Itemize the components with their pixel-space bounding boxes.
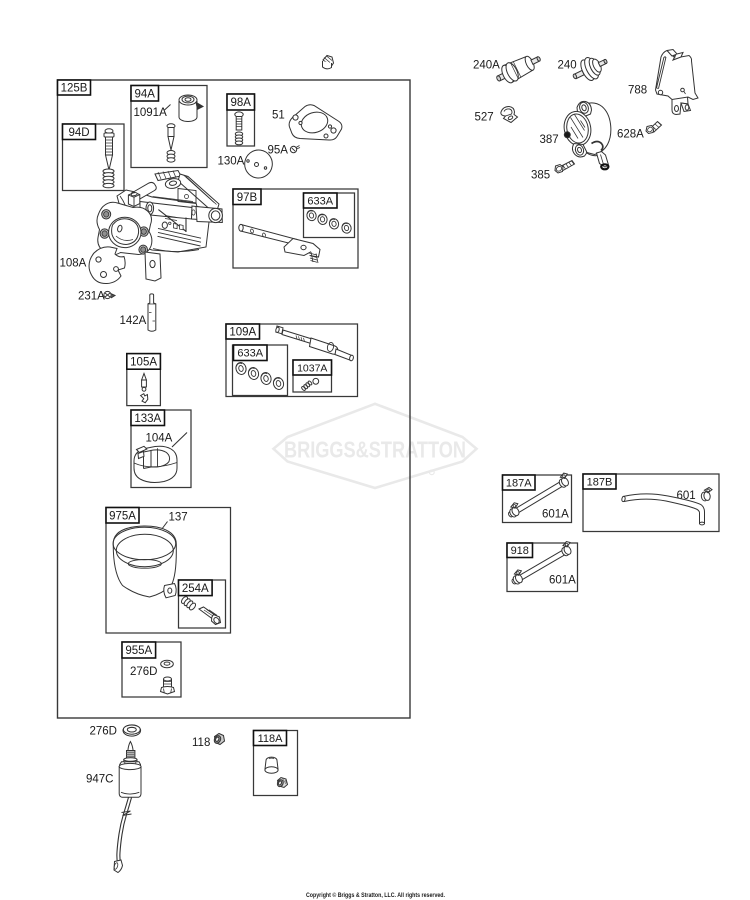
svg-text:788: 788 — [628, 85, 647, 97]
svg-text:240A: 240A — [473, 60, 500, 72]
svg-text:97B: 97B — [237, 192, 258, 204]
svg-text:105A: 105A — [130, 357, 157, 369]
svg-text:254A: 254A — [182, 583, 209, 595]
svg-text:130A: 130A — [218, 156, 245, 168]
svg-text:947C: 947C — [86, 774, 114, 786]
svg-text:94A: 94A — [135, 88, 156, 100]
svg-text:142A: 142A — [120, 315, 147, 327]
svg-text:108A: 108A — [60, 258, 87, 270]
svg-text:633A: 633A — [237, 348, 263, 360]
svg-text:94D: 94D — [68, 127, 89, 139]
svg-text:633A: 633A — [307, 196, 333, 208]
svg-text:628A: 628A — [617, 129, 644, 141]
svg-text:104A: 104A — [146, 433, 173, 445]
svg-text:109A: 109A — [229, 327, 256, 339]
svg-text:118: 118 — [192, 737, 210, 749]
svg-text:240: 240 — [558, 60, 577, 72]
svg-text:95A: 95A — [268, 145, 289, 157]
svg-text:Copyright © Briggs & Stratton,: Copyright © Briggs & Stratton, LLC. All … — [306, 892, 445, 899]
svg-text:955A: 955A — [125, 645, 152, 657]
svg-text:133A: 133A — [134, 413, 161, 425]
svg-text:187B: 187B — [587, 477, 613, 489]
svg-text:975A: 975A — [109, 510, 136, 522]
svg-text:601A: 601A — [542, 509, 569, 521]
svg-text:BRIGGS&STRATTON: BRIGGS&STRATTON — [284, 437, 466, 463]
svg-text:276D: 276D — [90, 726, 118, 738]
svg-text:51: 51 — [272, 110, 285, 122]
svg-text:231A: 231A — [78, 291, 105, 303]
svg-text:601A: 601A — [549, 575, 576, 587]
svg-text:98A: 98A — [231, 97, 252, 109]
svg-text:918: 918 — [511, 545, 529, 557]
svg-text:1091A: 1091A — [134, 107, 168, 119]
svg-text:137: 137 — [169, 512, 188, 524]
svg-text:187A: 187A — [506, 478, 532, 490]
svg-text:125B: 125B — [61, 83, 88, 95]
svg-text:387: 387 — [540, 134, 559, 146]
svg-text:527: 527 — [475, 112, 494, 124]
svg-text:385: 385 — [531, 170, 550, 182]
svg-text:118A: 118A — [258, 733, 284, 745]
svg-text:1037A: 1037A — [297, 362, 327, 374]
svg-text:276D: 276D — [130, 666, 158, 678]
